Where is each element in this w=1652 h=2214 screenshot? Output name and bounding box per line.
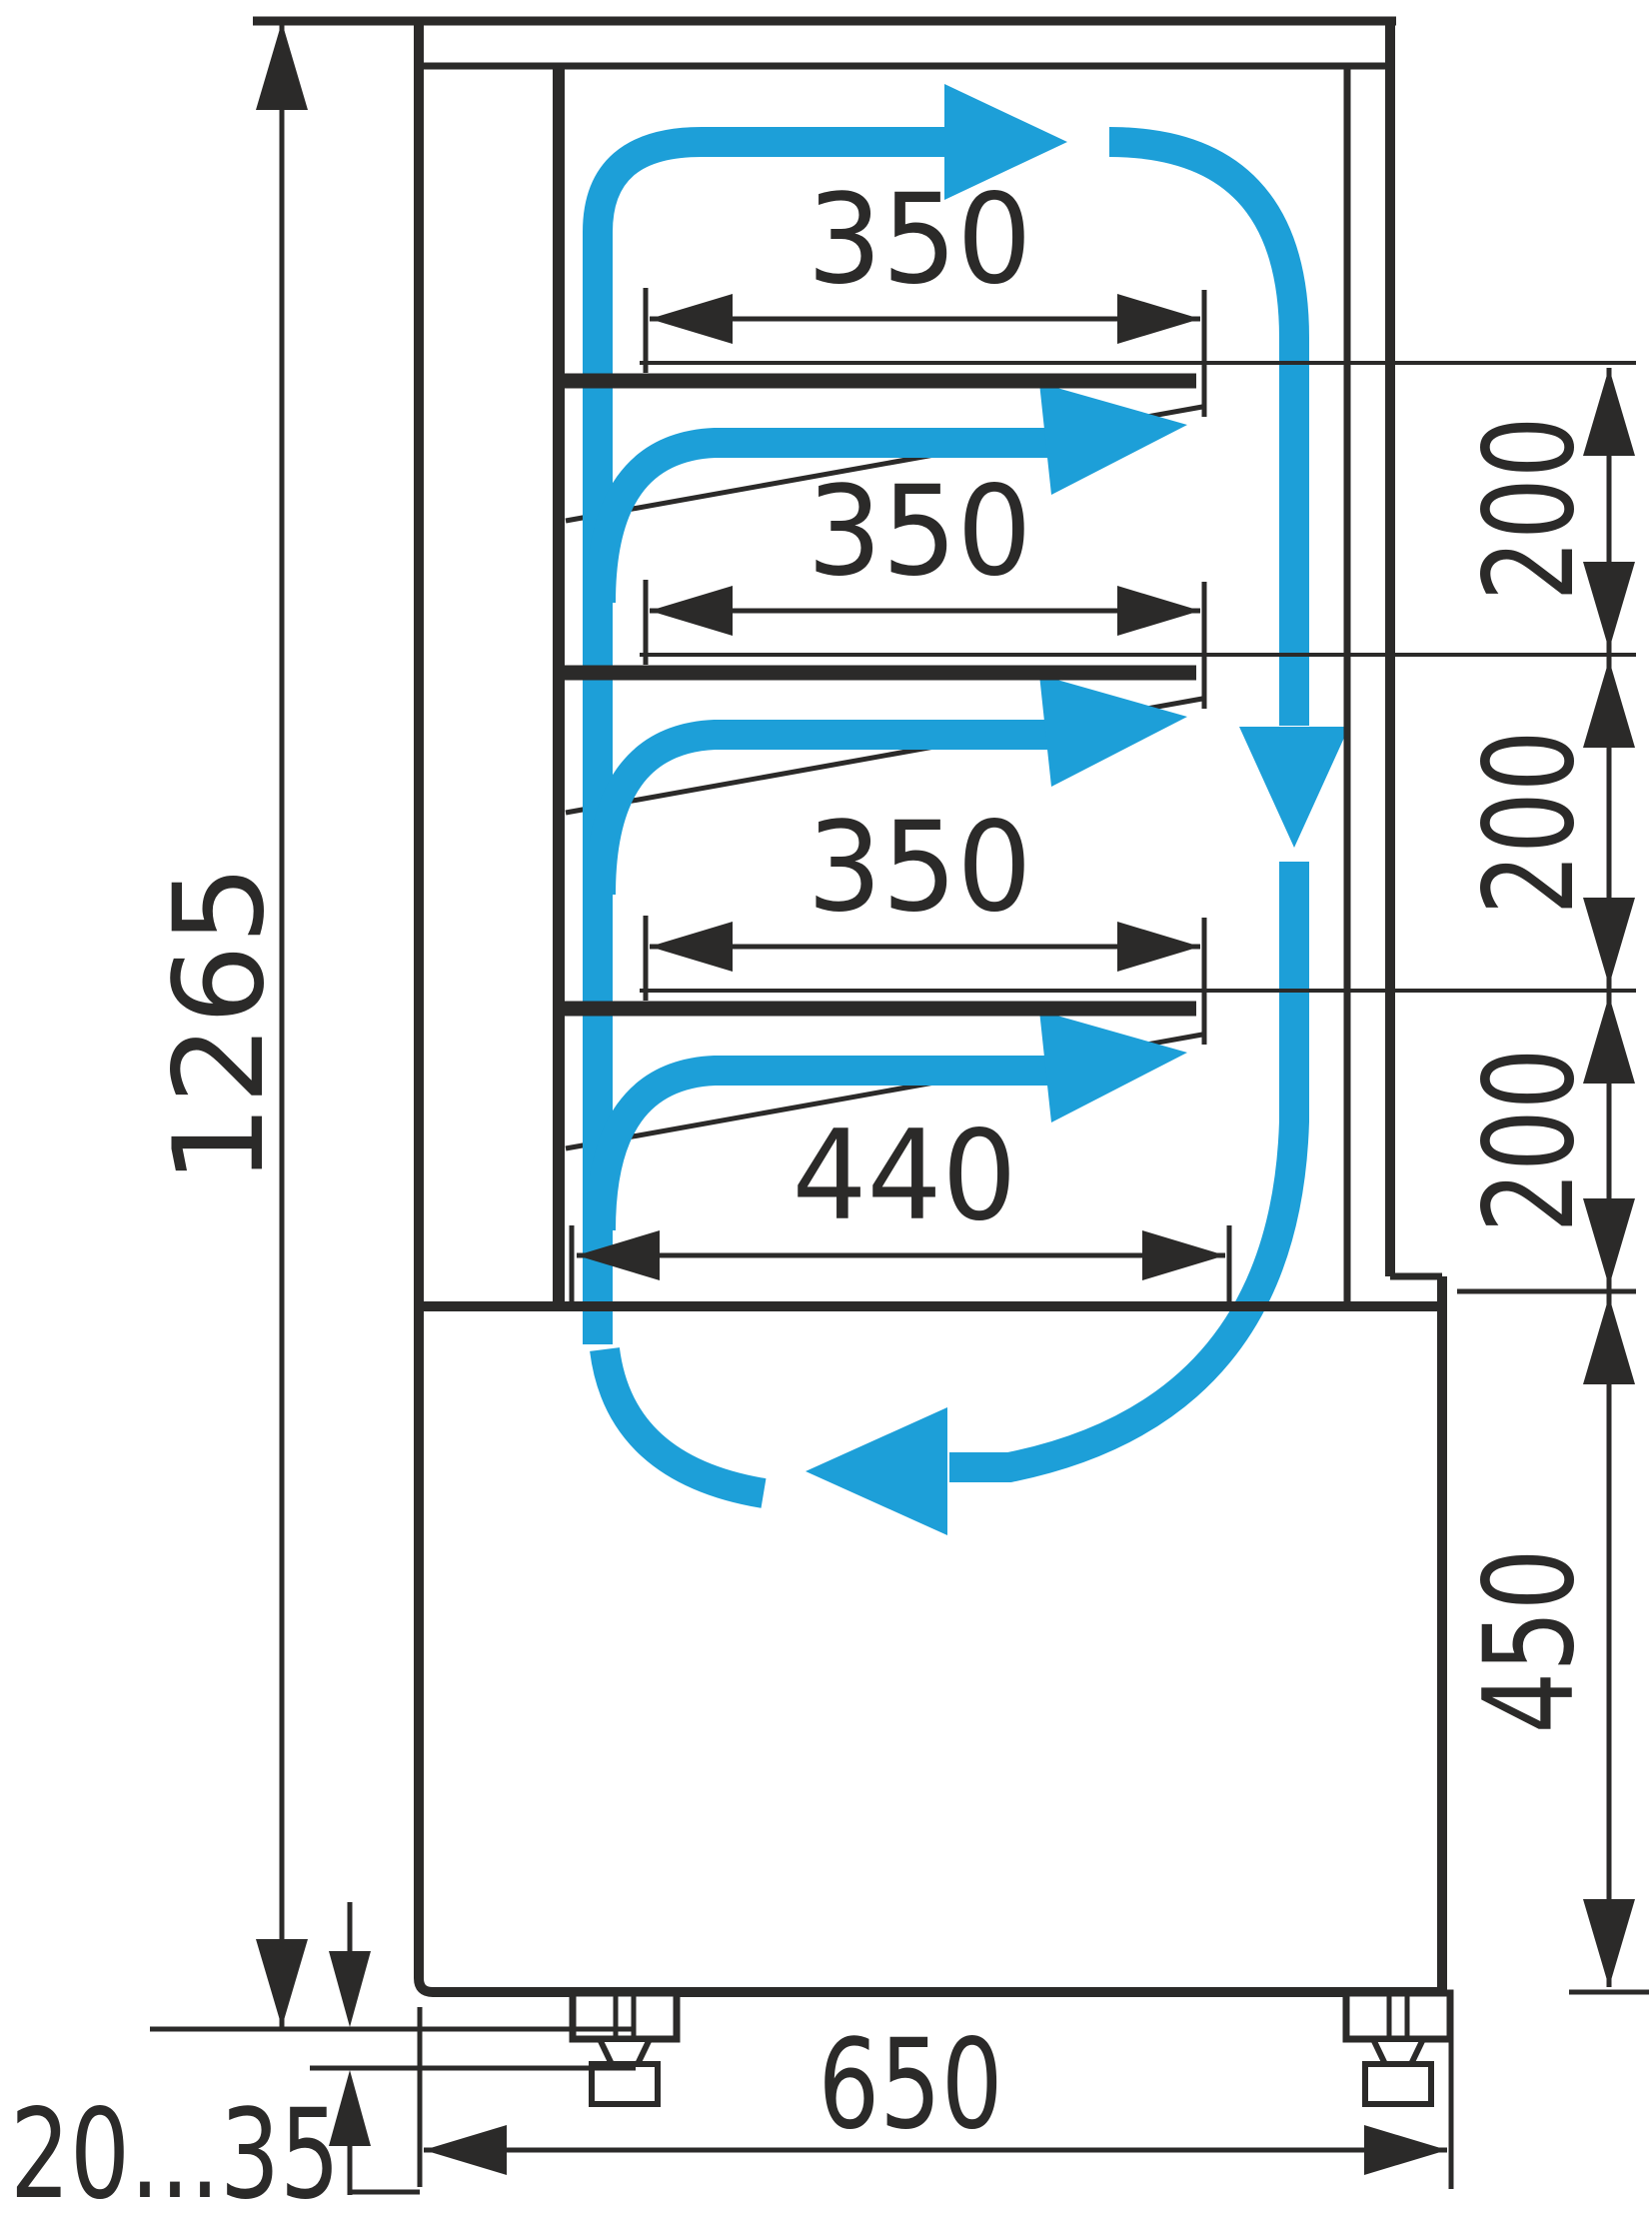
arrowhead-up-icon xyxy=(1583,1296,1635,1384)
arrowhead-left-icon xyxy=(650,294,733,344)
dim-base-width-label: 650 xyxy=(819,2013,1003,2157)
dim-right-chain: 200 200 200 450 xyxy=(1457,368,1649,1992)
cabinet-structure xyxy=(253,17,1636,1992)
shelf-1-arrowhead-icon xyxy=(1039,383,1187,495)
arrowhead-right-icon xyxy=(1117,586,1200,636)
arrowhead-down-icon xyxy=(1583,1899,1635,1987)
shelf-3-arrowhead-icon xyxy=(1039,1011,1187,1122)
down-flow-arrowhead-icon xyxy=(1239,727,1349,848)
dim-spacing-3-label: 200 xyxy=(1458,1049,1602,1233)
technical-drawing-canvas: 1265 350 350 350 440 200 200 200 xyxy=(0,0,1652,2214)
right-foot-pad xyxy=(1365,2064,1431,2104)
arrowhead-left-icon xyxy=(424,2125,507,2175)
arrowhead-up-icon xyxy=(256,22,308,110)
arrowhead-left-icon xyxy=(650,586,733,636)
dim-well-width: 440 xyxy=(572,1105,1229,1302)
dim-base-height-label: 450 xyxy=(1458,1549,1602,1734)
dim-shelf-1-label: 350 xyxy=(808,168,1032,312)
arrowhead-right-icon xyxy=(1117,294,1200,344)
return-to-duct-arc xyxy=(605,1349,764,1493)
adjustable-feet xyxy=(573,1993,1450,2104)
display-case-diagram: 1265 350 350 350 440 200 200 200 xyxy=(0,0,1652,2214)
dim-foot-adjust-label: 20...35 xyxy=(10,2083,340,2214)
arrowhead-left-icon xyxy=(650,922,733,972)
dim-2035-lines xyxy=(350,1902,420,2195)
arrowhead-right-icon xyxy=(1117,922,1200,972)
return-flow-arrowhead-icon xyxy=(806,1407,947,1535)
shelf-2-arrowhead-icon xyxy=(1039,675,1187,787)
left-foot-mount xyxy=(573,1993,677,2039)
arrowhead-right-icon xyxy=(1142,1230,1225,1280)
dim-shelf-3-label: 350 xyxy=(808,796,1032,940)
dim-total-height-label: 1265 xyxy=(148,865,292,1184)
left-foot-neck xyxy=(600,2039,650,2064)
dim-shelf-2-label: 350 xyxy=(808,460,1032,604)
dim-spacing-2-label: 200 xyxy=(1458,731,1602,916)
right-foot-neck xyxy=(1373,2039,1423,2064)
dim-foot-adjust: 20...35 xyxy=(10,1902,636,2214)
dim-total-height: 1265 xyxy=(148,22,308,2027)
arrowhead-right-icon xyxy=(1364,2125,1447,2175)
arrowhead-down-icon xyxy=(256,1939,308,2027)
dim-spacing-1-label: 200 xyxy=(1458,417,1602,602)
arrowhead-down-icon xyxy=(329,1951,371,2027)
dim-shelf-widths: 350 350 350 xyxy=(646,168,1204,1045)
dim-well-width-label: 440 xyxy=(793,1105,1017,1248)
right-foot-mount xyxy=(1346,1993,1450,2039)
